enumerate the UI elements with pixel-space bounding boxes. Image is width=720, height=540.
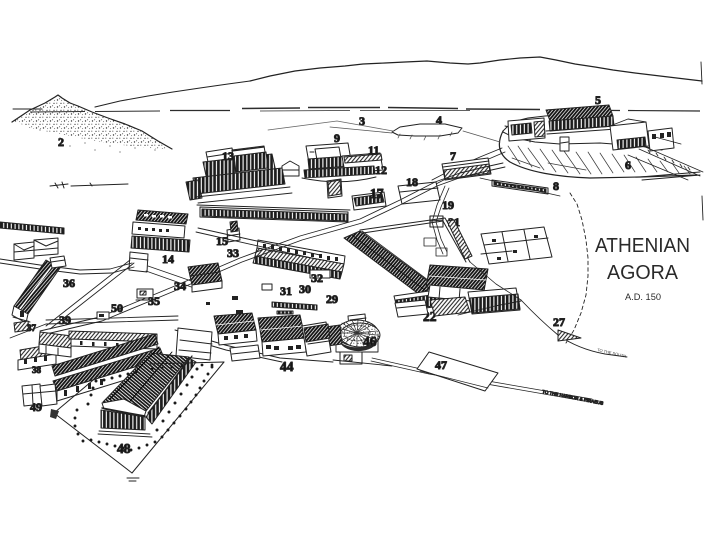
svg-text:44: 44 [280,359,294,374]
svg-text:34: 34 [174,279,186,293]
svg-text:2: 2 [58,135,64,149]
svg-text:13: 13 [222,149,234,163]
svg-text:35: 35 [148,294,160,308]
svg-text:49: 49 [30,400,42,414]
svg-text:8: 8 [553,179,559,193]
svg-text:27: 27 [553,315,565,329]
svg-text:ATHENIAN: ATHENIAN [595,235,690,257]
svg-text:9: 9 [334,131,340,145]
svg-text:32: 32 [311,271,323,285]
svg-text:18: 18 [406,175,418,189]
svg-text:5: 5 [595,93,601,107]
svg-text:47: 47 [435,358,447,372]
svg-text:12: 12 [375,163,387,177]
svg-text:AGORA: AGORA [607,262,679,284]
svg-text:36: 36 [63,276,75,290]
svg-text:14: 14 [162,252,174,266]
svg-text:29: 29 [326,292,338,306]
svg-text:31: 31 [280,284,292,298]
svg-text:A.D. 150: A.D. 150 [625,292,661,302]
svg-text:46: 46 [363,334,377,349]
svg-text:4: 4 [436,113,442,127]
svg-text:11: 11 [368,143,379,157]
svg-text:17: 17 [370,186,384,201]
svg-text:50: 50 [111,301,123,315]
svg-text:7: 7 [450,149,456,163]
svg-text:30: 30 [299,282,311,296]
svg-text:38: 38 [32,365,42,375]
svg-text:6: 6 [625,158,631,172]
svg-text:33: 33 [227,246,239,260]
